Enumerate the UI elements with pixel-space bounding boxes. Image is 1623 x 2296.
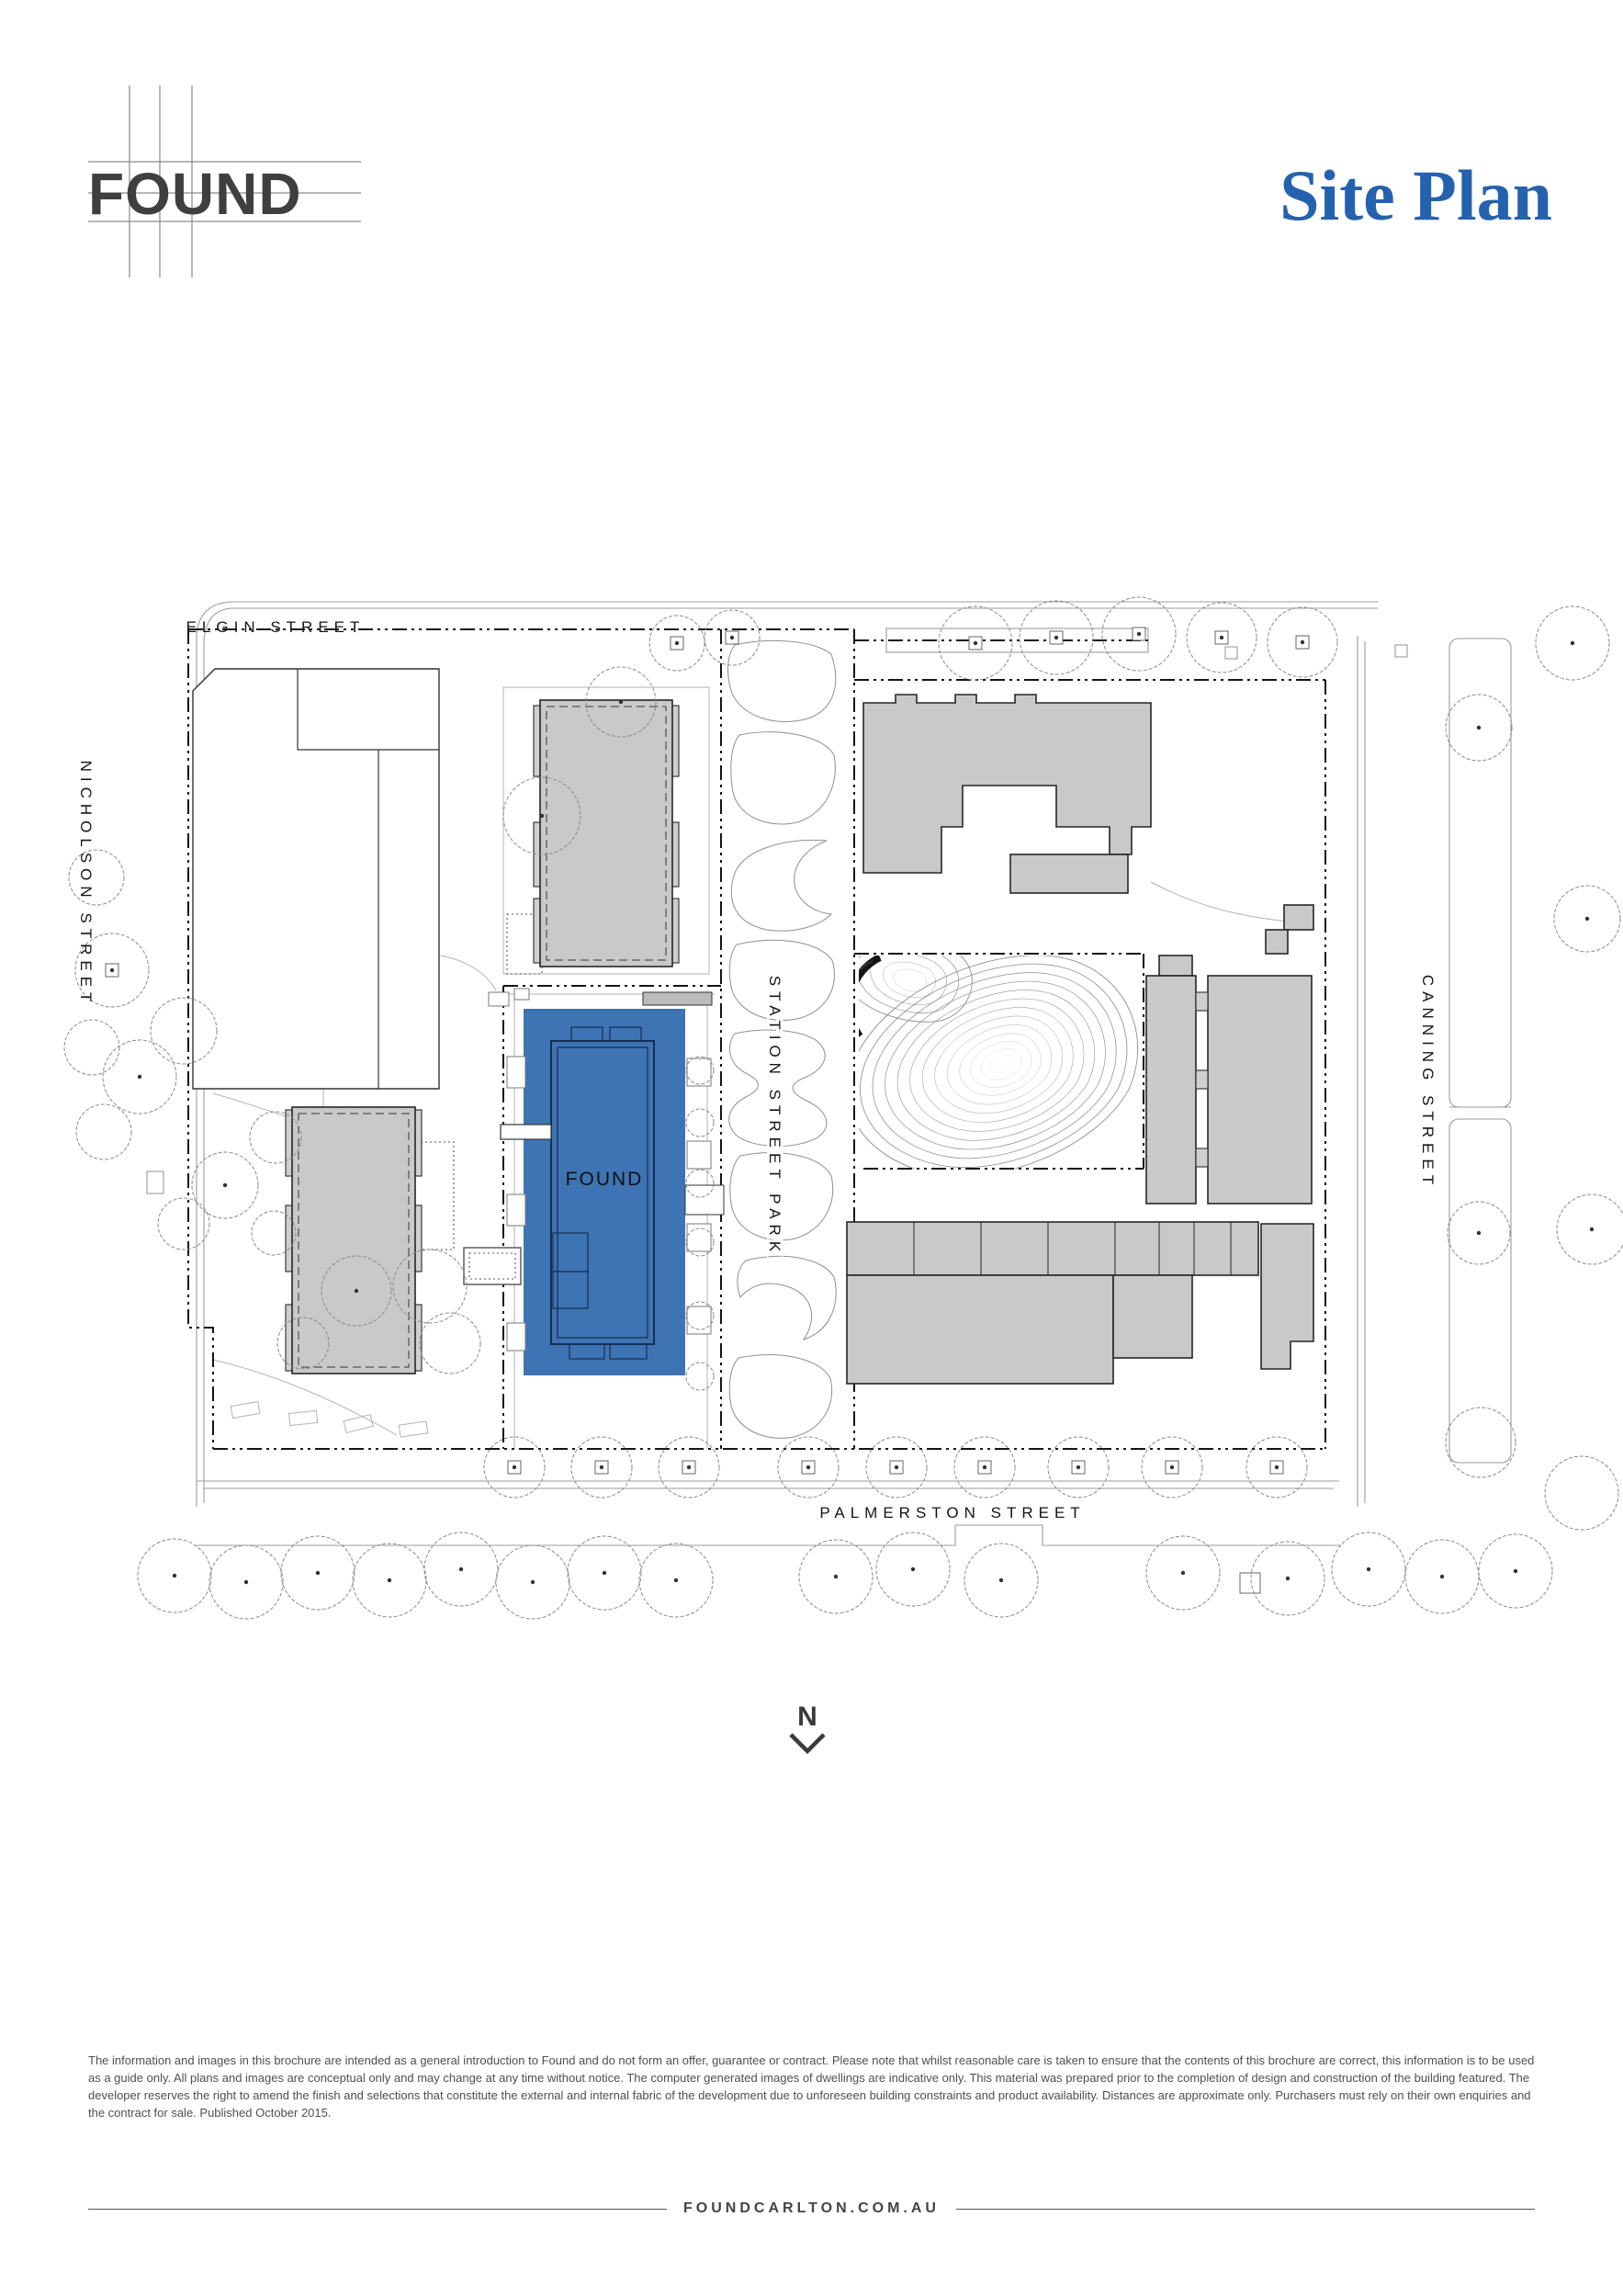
north-chevron-icon [791, 1735, 824, 1751]
building-east [1146, 956, 1312, 1204]
found-logo: FOUND [0, 0, 413, 294]
building-northeast [863, 695, 1151, 893]
page-title: Site Plan [1279, 154, 1552, 237]
street-label-palmerston: PALMERSTON STREET [819, 1504, 1085, 1521]
brand-wordmark: FOUND [88, 161, 302, 227]
street-label-canning: CANNING STREET [1419, 975, 1437, 1190]
found-building-label: FOUND [566, 1169, 644, 1190]
contour-lines-small [830, 919, 981, 1035]
brochure-page: FOUND Site Plan [0, 0, 1623, 2296]
footer-rule-right [956, 2209, 1535, 2210]
disclaimer-text: The information and images in this broch… [88, 2052, 1539, 2121]
street-label-nicholson: NICHOLSON STREET [77, 761, 95, 1008]
footer-rule-left [88, 2209, 667, 2210]
footer-url: FOUNDCARLTON.COM.AU [683, 2200, 940, 2217]
building-southwest [286, 1107, 422, 1374]
building-north-center [534, 700, 679, 967]
street-label-station-park: STATION STREET PARK [766, 976, 783, 1257]
north-label: N [797, 1702, 817, 1732]
contour-park [818, 919, 1167, 1216]
footer: FOUNDCARLTON.COM.AU [88, 2200, 1535, 2217]
north-arrow: N [791, 1702, 824, 1751]
street-label-elgin: ELGIN STREET [186, 618, 366, 636]
site-plan: FOUND [0, 570, 1623, 1764]
